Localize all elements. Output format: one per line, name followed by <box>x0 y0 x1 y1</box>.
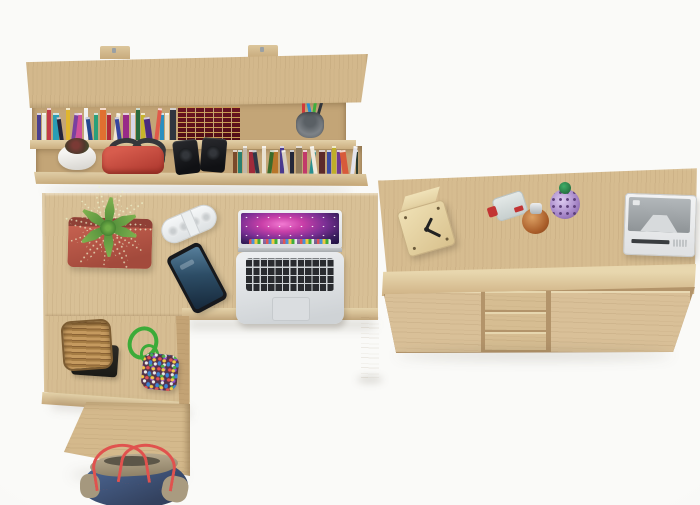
book-spine <box>233 150 237 176</box>
shelf-bracket-right <box>248 45 278 58</box>
sideboard-drawer-3 <box>485 332 546 350</box>
bracket-pin-icon <box>260 47 264 52</box>
sideboard-shadow <box>396 350 672 360</box>
bracket-pin-icon <box>112 48 116 53</box>
red-handbag <box>102 138 164 174</box>
cup <box>296 112 324 138</box>
succulent <box>65 138 89 154</box>
plant-bowl <box>58 136 96 170</box>
red-planter <box>60 198 156 272</box>
laptop-dock <box>249 239 331 244</box>
laptop-keyboard <box>246 258 334 291</box>
sideboard-drawer-2 <box>485 312 546 330</box>
book-spine <box>296 146 302 176</box>
book-spine <box>303 150 307 176</box>
phone-lockscreen-time <box>179 259 195 270</box>
book-spine <box>243 146 247 176</box>
book-spine <box>136 108 140 142</box>
handbag-body <box>102 146 164 174</box>
perfume-bottle-purple <box>550 189 580 219</box>
retro-radio <box>623 193 697 259</box>
shelf-bracket-left <box>100 46 130 59</box>
laptop-screen <box>241 213 339 244</box>
speaker-right <box>200 137 228 173</box>
book-row-upper <box>36 106 176 142</box>
book-spine <box>327 150 331 176</box>
shelf-top-panel <box>24 52 368 108</box>
book-spine <box>290 150 294 176</box>
screw-icon <box>404 216 408 220</box>
book-spine <box>262 146 266 176</box>
perfume-bottles <box>492 186 588 238</box>
desk-right-leg <box>361 316 379 378</box>
screw-icon <box>413 247 417 251</box>
laptop-lid <box>238 210 342 248</box>
book-spine <box>319 150 325 176</box>
bottle-cap <box>559 182 571 194</box>
speaker-left <box>172 139 201 176</box>
bottle-label <box>514 205 524 213</box>
wicker-basket <box>60 318 113 371</box>
sideboard-front <box>382 286 695 354</box>
book-spine <box>47 108 51 142</box>
sideboard-drawer-stack <box>485 291 546 349</box>
screw-icon <box>445 237 449 241</box>
sideboard-drawer-1 <box>485 291 546 309</box>
desk-leg-shadow <box>357 376 383 383</box>
book-spine <box>332 146 336 176</box>
laptop-trackpad <box>272 297 310 321</box>
book-spine <box>42 113 46 142</box>
radio-grill <box>673 239 686 246</box>
bottle-cap <box>487 206 499 218</box>
denim-tote-bag <box>80 448 192 505</box>
laptop-deck <box>236 252 344 324</box>
plant-core <box>100 220 116 236</box>
pen-cup <box>296 102 328 142</box>
screw-icon <box>436 206 440 210</box>
laptop <box>234 208 346 324</box>
sideboard-door-left <box>385 291 480 351</box>
bead-pouch <box>140 352 180 392</box>
book-row-lower <box>232 146 358 176</box>
book-spine <box>165 113 169 142</box>
book-spine <box>100 108 106 142</box>
book-spine <box>37 113 41 142</box>
bottle-cap <box>530 203 542 214</box>
book-spine <box>238 150 242 176</box>
sideboard-door-right <box>551 291 690 351</box>
classic-volume-spine <box>232 107 240 144</box>
speaker-pair <box>172 138 230 176</box>
perfume-bottle-amber <box>522 208 549 234</box>
product-render-scene <box>0 0 700 505</box>
radio-button <box>633 200 640 205</box>
book-spine <box>170 108 176 142</box>
